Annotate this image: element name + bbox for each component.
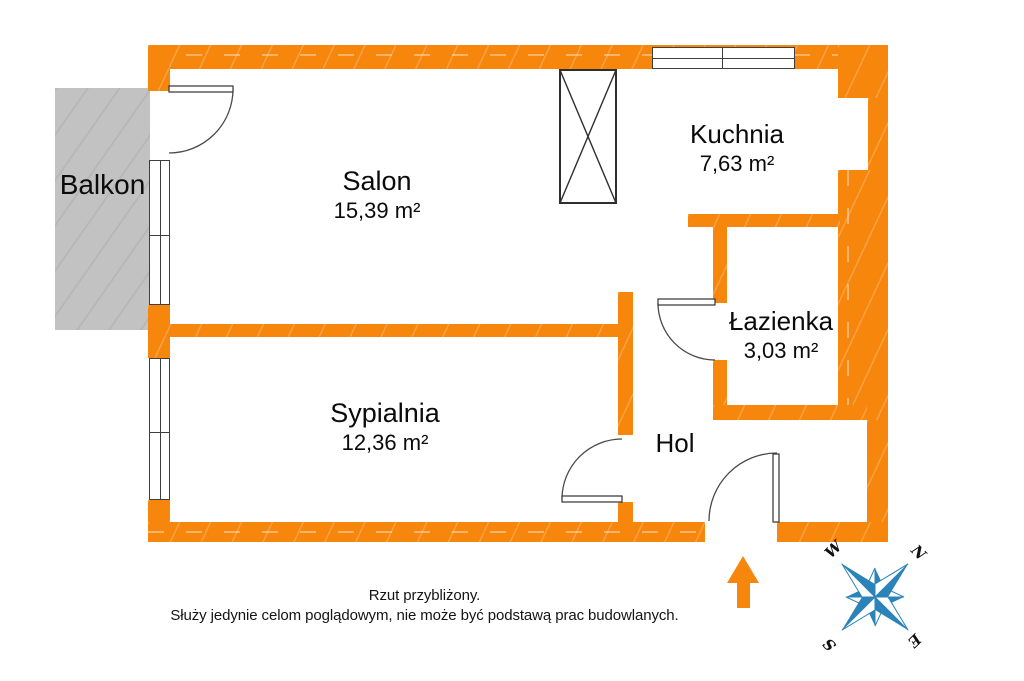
compass-label-south: S [819,634,840,655]
room-name: Sypialnia [285,398,485,428]
window-divider [722,48,723,68]
room-name: Łazienka [691,307,871,336]
window-glass-line [160,359,161,499]
window-glass-line [653,58,794,59]
compass-label-north: N [907,541,931,565]
floor-plan: Salon 15,39 m² Kuchnia 7,63 m² Łazienka … [0,0,1024,681]
window-glass-line [160,161,161,304]
wall-lazienka-bottom [713,405,867,420]
wall-hol-sypialnia-lower [618,502,633,522]
room-area: 12,36 m² [285,428,485,458]
wall-left-upper [148,45,170,91]
room-label-lazienka: Łazienka 3,03 m² [691,307,871,366]
wall-right-lower [867,420,888,522]
wall-right-mid [838,170,888,420]
compass-label-west: W [821,536,847,562]
room-area: 3,03 m² [691,336,871,366]
wall-hol-sypialnia-upper [618,292,633,435]
room-name: Hol [625,429,725,458]
room-area: 15,39 m² [277,196,477,226]
window-salon [149,160,170,305]
room-name: Kuchnia [637,120,837,149]
balcony-area [55,88,150,330]
room-label-kuchnia: Kuchnia 7,63 m² [637,120,837,179]
balcony-door [169,86,233,153]
wall-salon-sypialnia [170,324,632,337]
wall-left-mid [148,305,170,358]
room-label-hol: Hol [625,429,725,458]
wall-lazienka-left-upper [713,227,727,303]
wall-kuchnia-bottom [688,214,840,227]
room-name: Balkon [55,169,150,200]
wall-right-notch [868,98,888,170]
wall-bottom-left [148,522,705,542]
room-area: 7,63 m² [637,149,837,179]
wall-right-top [838,45,888,98]
window-sypialnia [149,358,170,500]
sypialnia-door [562,439,622,502]
duct-shaft-icon [560,70,616,203]
window-kuchnia [652,47,795,69]
window-divider [150,235,169,236]
room-label-sypialnia: Sypialnia 12,36 m² [285,398,485,458]
room-name: Salon [277,166,477,196]
disclaimer-line-1: Rzut przybliżony. [2,586,847,606]
room-label-salon: Salon 15,39 m² [277,166,477,226]
disclaimer-line-2: Służy jedynie celom poglądowym, nie może… [2,606,847,626]
room-label-balkon: Balkon [55,169,150,200]
compass-label-east: E [904,629,926,651]
entrance-door [709,453,779,522]
disclaimer-note: Rzut przybliżony. Służy jedynie celom po… [2,586,847,627]
compass-rose-icon: W N S E [813,535,941,663]
window-divider [150,432,169,433]
